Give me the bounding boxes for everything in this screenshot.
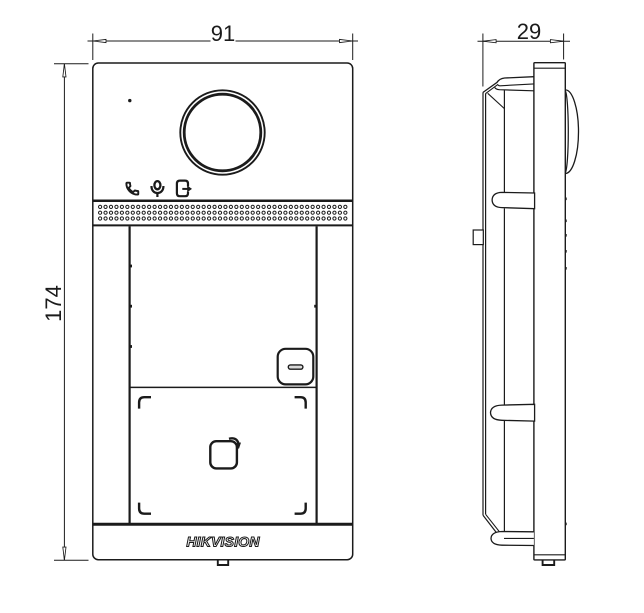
svg-text:HIKVISION: HIKVISION bbox=[186, 533, 260, 549]
svg-text:29: 29 bbox=[517, 19, 541, 44]
svg-text:91: 91 bbox=[211, 21, 235, 46]
svg-text:174: 174 bbox=[41, 285, 66, 322]
